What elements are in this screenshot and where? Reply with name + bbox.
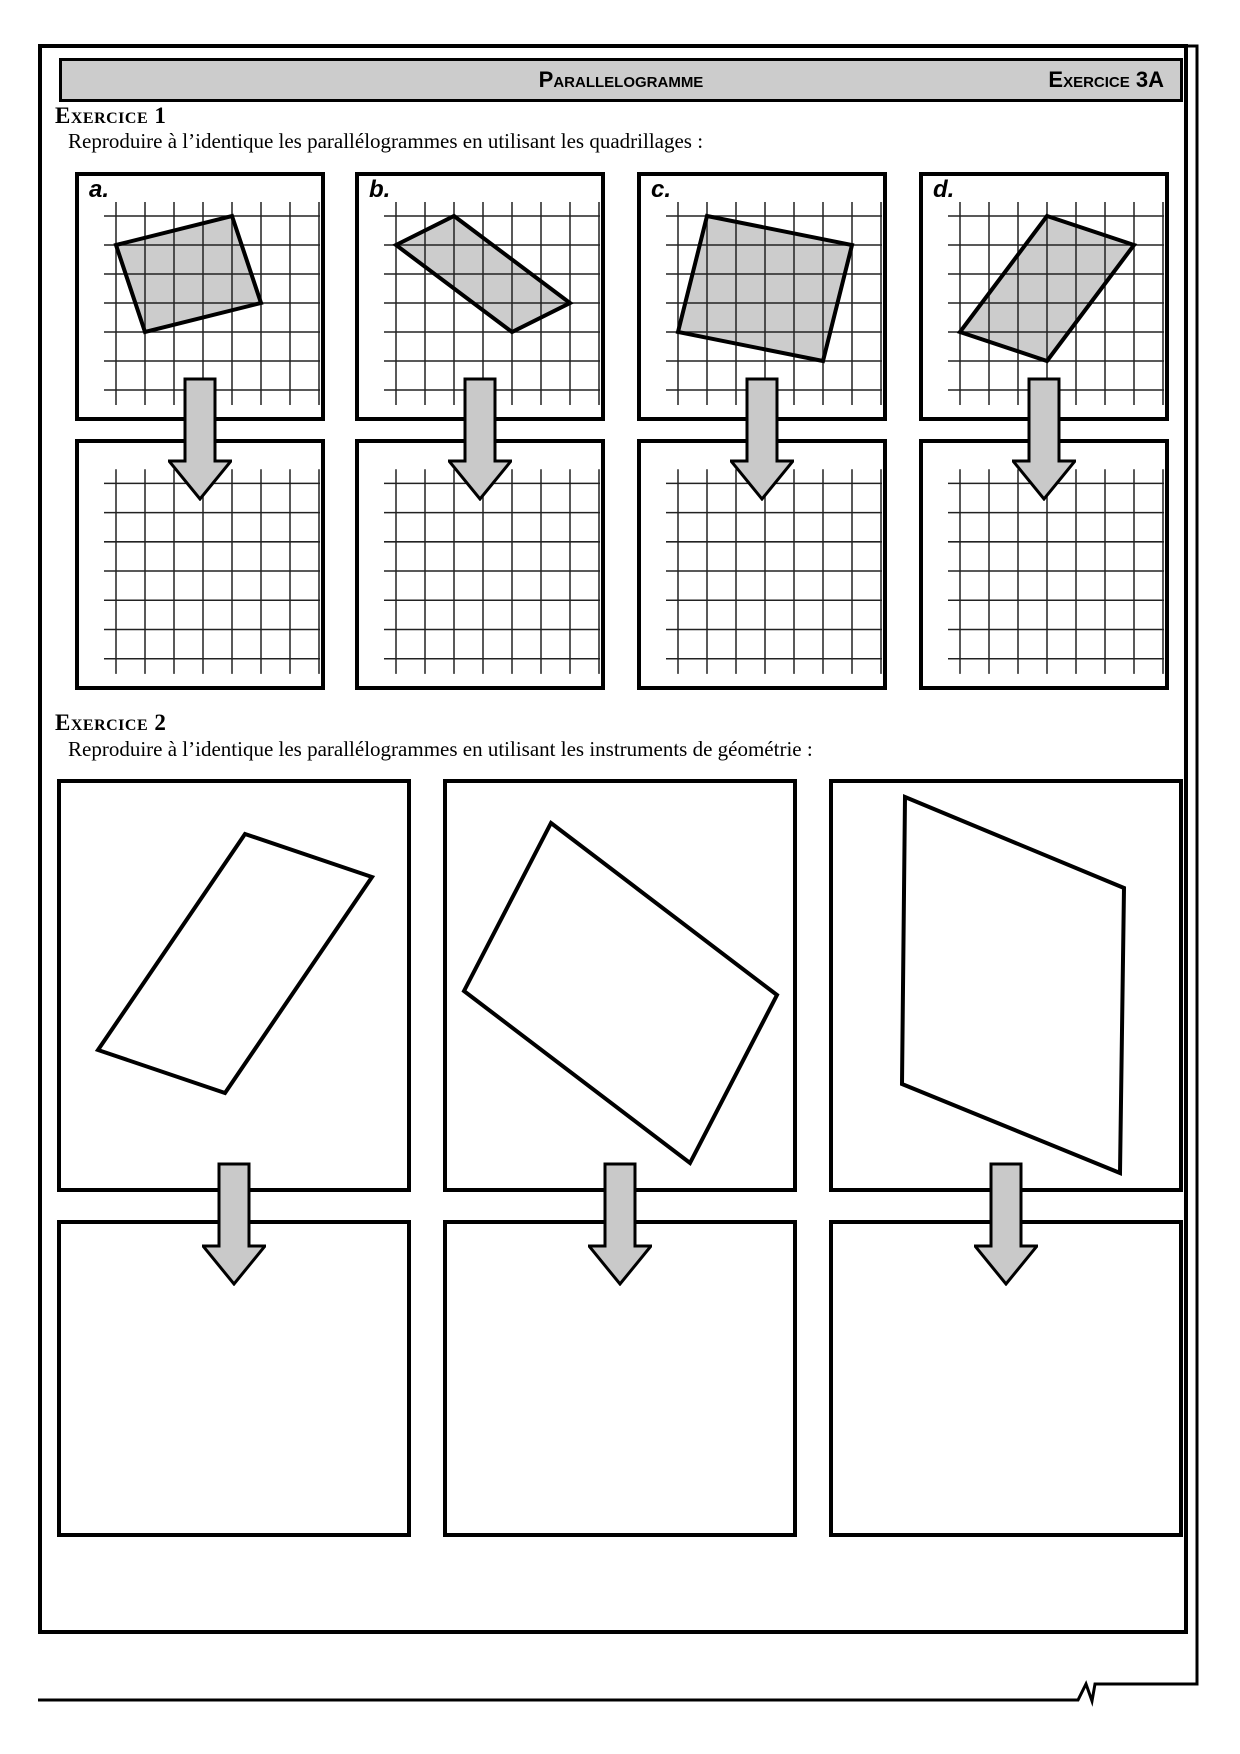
exercise2-model-box-3: [829, 779, 1183, 1192]
box-label-b: b.: [369, 176, 390, 204]
exercise1-heading: Exercice 1: [55, 103, 166, 129]
down-arrow-icon: [448, 377, 512, 501]
parallelogram-outline-1: [61, 783, 407, 1188]
exercise2-heading: Exercice 2: [55, 710, 166, 736]
exercise-reference: Exercice 3A: [1048, 67, 1164, 93]
parallelogram-outline-3: [833, 783, 1179, 1188]
down-arrow-icon: [730, 377, 794, 501]
worksheet-page: Parallelogramme Exercice 3A Exercice 1 R…: [0, 0, 1240, 1754]
parallelogram-outline-2: [447, 783, 793, 1188]
down-arrow-icon: [1012, 377, 1076, 501]
page-title: Parallelogramme: [62, 67, 1180, 93]
down-arrow-icon: [202, 1162, 266, 1286]
down-arrow-icon: [974, 1162, 1038, 1286]
down-arrow-icon: [168, 377, 232, 501]
exercise1-instruction: Reproduire à l’identique les parallélogr…: [68, 129, 703, 154]
header-bar: Parallelogramme Exercice 3A: [59, 58, 1183, 102]
exercise2-model-box-2: [443, 779, 797, 1192]
box-label-a: a.: [89, 176, 109, 204]
down-arrow-icon: [588, 1162, 652, 1286]
exercise2-model-box-1: [57, 779, 411, 1192]
box-label-c: c.: [651, 176, 671, 204]
box-label-d: d.: [933, 176, 954, 204]
exercise2-instruction: Reproduire à l’identique les parallélogr…: [68, 737, 813, 762]
